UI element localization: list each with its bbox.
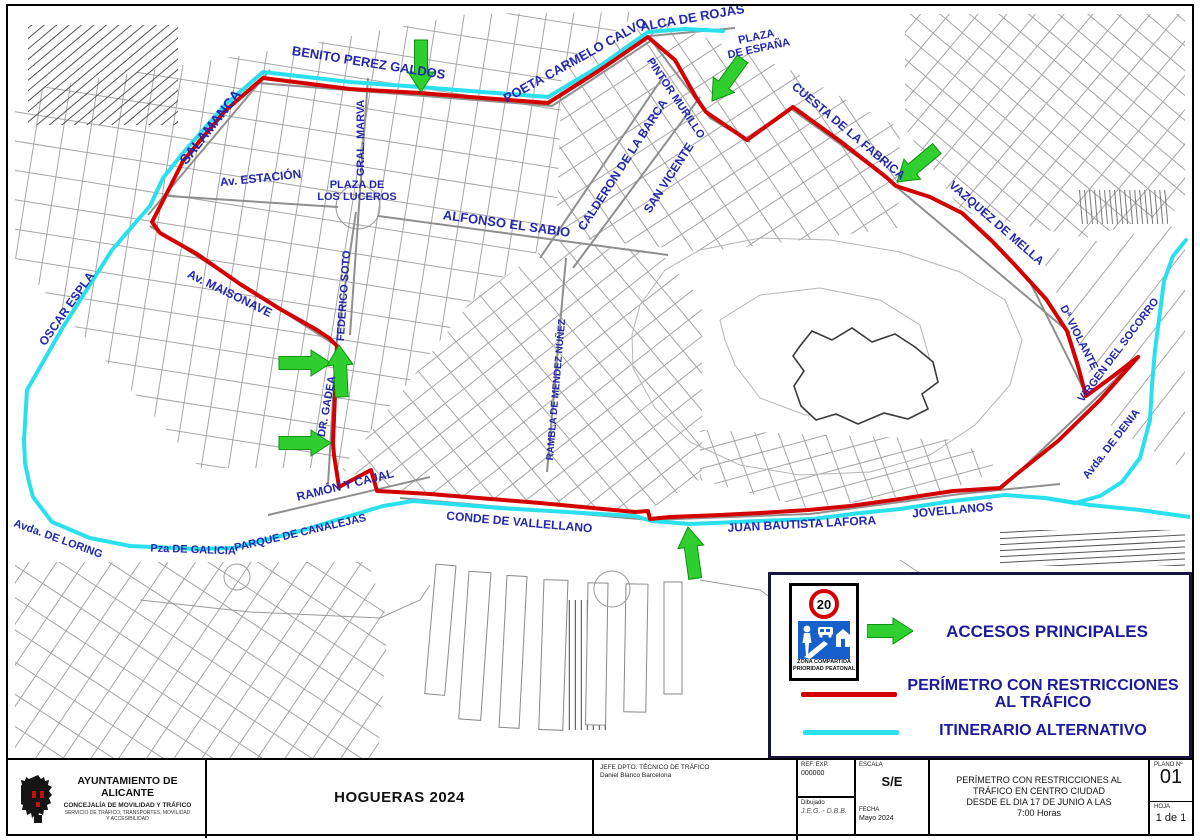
date: FECHA Mayo 2024 — [856, 805, 928, 834]
street-label: Pza DE GALICIA — [150, 543, 236, 558]
street-labels: SALAMANCABENITO PEREZ GALDOSPOETA CARMEL… — [12, 6, 1162, 561]
plan-number: PLANO Nº 01 — [1150, 760, 1192, 802]
street-label: RAMBLA DE MENDEZ NUÑEZ — [543, 318, 568, 460]
plan-sheet: SALAMANCABENITO PEREZ GALDOSPOETA CARMEL… — [0, 0, 1200, 840]
street-label: Av. ESTACIÓN — [219, 166, 302, 189]
access-arrow-icon — [675, 525, 708, 580]
project-cell: HOGUERAS 2024 — [207, 760, 594, 834]
plan-number-cell: PLANO Nº 01 HOJA 1 de 1 — [1150, 760, 1192, 834]
street-label: RAMÓN Y CAJAL — [295, 465, 395, 504]
alicante-crest-icon — [21, 775, 55, 823]
shared-zone-pictogram-icon — [798, 621, 850, 659]
street-label: PARQUE DE CANALEJAS — [233, 512, 367, 554]
author-role: JEFE DPTO. TÉCNICO DE TRÁFICO — [600, 764, 790, 772]
org-service: SERVICIO DE TRÁFICO, TRANSPORTES, MOVILI… — [63, 810, 193, 822]
ref-exp: REF. EXP. 000000 — [798, 760, 854, 798]
hatch-area — [8, 6, 244, 216]
speed-limit-value: 20 — [817, 597, 831, 612]
alternative-route-line — [24, 29, 1186, 549]
street-label: JOVELLANOS — [912, 499, 994, 520]
legend-green-arrow-icon — [867, 617, 913, 645]
sheet-frame: SALAMANCABENITO PEREZ GALDOSPOETA CARMEL… — [6, 4, 1194, 836]
street-label: GRAL. MARVA — [355, 100, 367, 177]
shared-zone-sign: 20 ZONA COMPARTIDA PRIORIDAD PEATONA — [789, 583, 859, 681]
legend-label-accesos: ACCESOS PRINCIPALES — [919, 623, 1175, 640]
scale-date-cell: ESCALA S/E FECHA Mayo 2024 — [856, 760, 930, 834]
ref-cell: REF. EXP. 000000 Dibujado J.E.G. - D.B.B… — [798, 760, 856, 834]
legend-label-perimetro: PERÍMETRO CON RESTRICCIONES AL TRÁFICO — [905, 677, 1181, 711]
scale: ESCALA S/E — [856, 760, 928, 805]
org-dept: CONCEJALÍA DE MOVILIDAD Y TRÁFICO — [63, 802, 193, 809]
drawing-title: PERÍMETRO CON RESTRICCIONES AL TRÁFICO E… — [956, 775, 1122, 819]
org-name: AYUNTAMIENTO DE ALICANTE — [63, 776, 193, 799]
speed-limit-sign: 20 — [809, 589, 839, 619]
author-cell: JEFE DPTO. TÉCNICO DE TRÁFICO Daniel Bla… — [594, 760, 798, 840]
org-cell: AYUNTAMIENTO DE ALICANTE CONCEJALÍA DE M… — [8, 760, 207, 838]
author-name: Daniel Blanco Barcelona — [600, 772, 790, 780]
street-label: SALAMANCA — [176, 86, 244, 167]
street-label: CUESTA DE LA FABRICA — [789, 79, 908, 182]
alternative-route-spur — [1045, 498, 1190, 517]
drawn: Dibujado J.E.G. - D.B.B. — [798, 798, 854, 834]
sheet-number: HOJA 1 de 1 — [1150, 802, 1192, 834]
legend-red-line-icon — [801, 692, 897, 697]
access-arrow-icon — [701, 51, 753, 108]
access-arrow-icon — [279, 350, 331, 376]
street-label: PLAZADE ESPAÑA — [724, 25, 791, 62]
legend-label-perimetro-line2: AL TRÁFICO — [995, 694, 1092, 711]
legend-cyan-line-icon — [803, 730, 899, 735]
legend-label-perimetro-line1: PERÍMETRO CON RESTRICCIONES — [907, 677, 1178, 694]
legend-label-itinerario: ITINERARIO ALTERNATIVO — [905, 722, 1181, 739]
legend: 20 ZONA COMPARTIDA PRIORIDAD PEATONA — [768, 572, 1192, 759]
castle-outline — [793, 328, 938, 424]
street-label: CALDERON DE LA BARCA — [575, 96, 671, 233]
street-label: PLAZA DELOS LUCEROS — [317, 179, 396, 203]
drawing-title-cell: PERÍMETRO CON RESTRICCIONES AL TRÁFICO E… — [930, 760, 1150, 834]
sign-text-line2: PRIORIDAD PEATONAL — [793, 666, 855, 673]
project-title: HOGUERAS 2024 — [334, 789, 465, 806]
title-block: AYUNTAMIENTO DE ALICANTE CONCEJALÍA DE M… — [8, 758, 1192, 834]
hatch-area — [1061, 144, 1186, 270]
street-label: SAN VICENTE — [641, 140, 697, 215]
street-label: ALFONSO EL SABIO — [442, 207, 571, 240]
